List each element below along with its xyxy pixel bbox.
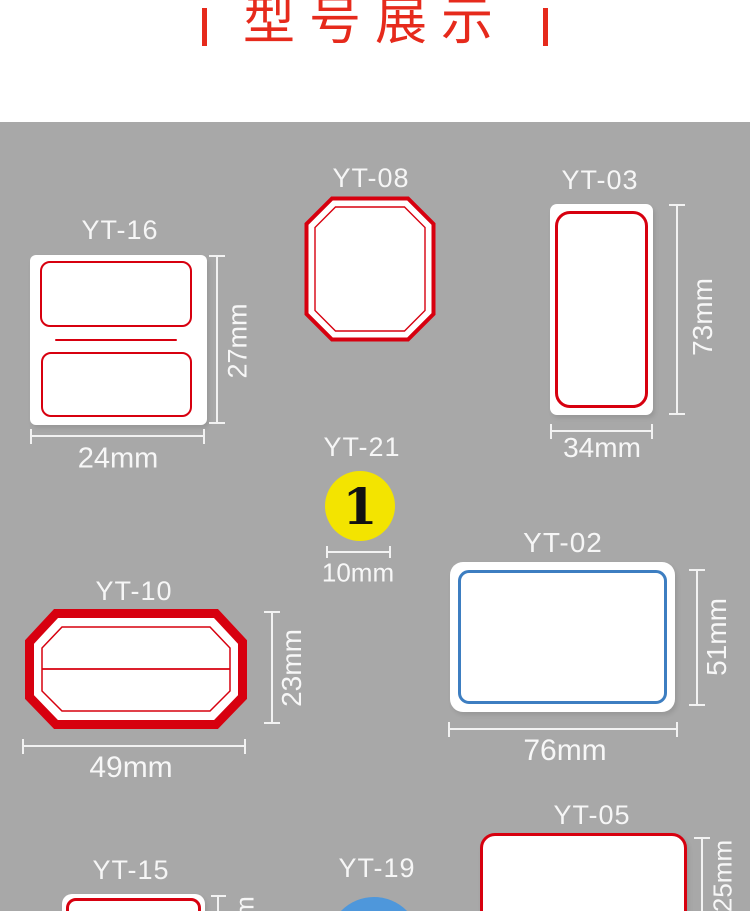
yt16-height-dim-label: 27mm	[223, 303, 254, 378]
model-name-yt03: YT-03	[561, 165, 638, 196]
label-preview-yt03	[550, 204, 653, 415]
yt05-height-dim-label: 25mm	[708, 840, 739, 911]
model-name-yt08: YT-08	[332, 163, 409, 194]
yt21-width-dim-label: 10mm	[322, 558, 394, 589]
yt05-height-dim-line	[701, 838, 703, 911]
label-preview-yt05	[480, 833, 687, 911]
yt16-height-dim-cap-bottom	[209, 422, 225, 424]
yt15-height-dim-line	[217, 896, 219, 911]
yt10-width-dim-tick-right	[244, 739, 246, 754]
yt16-height-dim-line	[216, 256, 218, 423]
model-name-yt02: YT-02	[523, 527, 603, 559]
model-name-yt10: YT-10	[95, 576, 172, 607]
yt10-height-dim-cap-bottom	[264, 722, 280, 724]
yt02-width-dim-line	[448, 728, 678, 730]
label-preview-yt10	[25, 609, 247, 729]
yt16-divider-line	[55, 339, 177, 341]
yt16-top-field	[40, 261, 192, 327]
yt02-field	[458, 570, 667, 704]
yt21-width-dim-line	[326, 551, 391, 553]
page-title: 型号展示	[243, 0, 507, 50]
label-preview-yt08	[304, 196, 436, 342]
yt03-height-dim-cap-bottom	[669, 413, 685, 415]
title-left-bar	[202, 8, 207, 46]
yt16-width-dim-line	[30, 435, 205, 437]
yt02-height-dim-cap-bottom	[689, 704, 705, 706]
model-name-yt16: YT-16	[81, 215, 158, 246]
yt16-width-dim-label: 24mm	[78, 443, 159, 476]
yt10-height-dim-line	[271, 612, 273, 723]
yt15-height-dim-label: m	[230, 896, 261, 911]
model-name-yt19: YT-19	[338, 853, 415, 884]
model-display-image: 型号展示 YT-16 27mm 24mm YT-08 YT-03 73mm 34…	[0, 0, 750, 911]
yt03-width-dim-tick-right	[651, 424, 653, 439]
yt02-height-dim-label: 51mm	[701, 598, 733, 676]
yt02-width-dim-label: 76mm	[523, 734, 606, 768]
yt03-width-dim-label: 34mm	[563, 432, 641, 464]
label-preview-yt02	[450, 562, 675, 712]
title-right-bar	[543, 8, 548, 46]
yt03-height-dim-line	[676, 205, 678, 414]
model-name-yt15: YT-15	[92, 855, 169, 886]
yt16-width-dim-tick-right	[203, 429, 205, 444]
yt10-height-dim-label: 23mm	[276, 629, 308, 707]
yt02-height-dim-line	[696, 570, 698, 705]
yt03-height-dim-label: 73mm	[687, 278, 719, 356]
label-preview-yt21: 1	[325, 471, 395, 541]
label-preview-yt15	[62, 894, 205, 911]
yt10-width-dim-line	[22, 745, 246, 747]
yt10-width-dim-label: 49mm	[89, 751, 172, 785]
yt21-width-dim-tick-right	[389, 546, 391, 558]
yt02-width-dim-tick-right	[676, 722, 678, 737]
yt15-field	[66, 898, 201, 911]
page-header: 型号展示	[0, 0, 750, 122]
yt21-number: 1	[325, 471, 395, 541]
yt03-field	[555, 211, 648, 408]
yt16-bottom-field	[41, 352, 192, 417]
model-name-yt05: YT-05	[553, 800, 630, 831]
model-name-yt21: YT-21	[323, 432, 400, 463]
label-preview-yt16	[30, 255, 207, 425]
